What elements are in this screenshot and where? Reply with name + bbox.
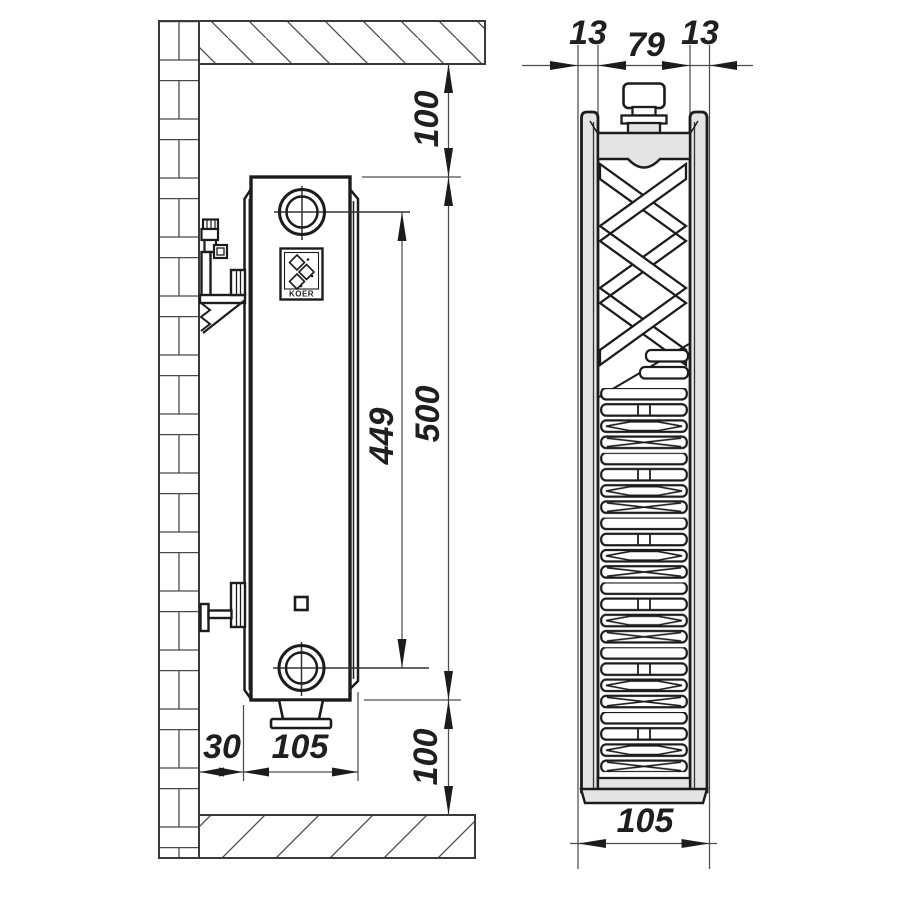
floor-section [199,815,475,858]
drawing-svg: KOER [0,0,900,900]
top-wall-bracket [200,220,245,334]
dim-label-core-width: 79 [627,26,665,64]
ceiling-section [199,21,485,64]
dim-label-depth: 105 [272,728,330,766]
front-view: 13 79 13 105 [522,14,753,869]
dim-label-port-spacing: 449 [363,408,401,466]
dim-label-top-clearance: 100 [408,91,446,148]
bottom-wall-bracket [201,583,246,631]
brand-logo: KOER [281,249,323,300]
radiator-base [581,778,707,803]
brand-logo-text: KOER [289,290,314,299]
dim-label-wall-gap: 30 [203,728,241,766]
dim-label-panel-right: 13 [681,14,719,52]
side-view: KOER [159,21,485,858]
radiator-dimension-drawing: KOER [0,0,900,900]
convector-fins-zigzag [599,164,689,397]
dim-label-bottom-clearance: 100 [407,729,445,786]
side-vent-square [295,597,308,610]
drain-plug [271,700,331,728]
dim-label-total-depth: 105 [617,802,675,840]
wall-section [159,21,199,858]
dim-label-panel-left: 13 [569,14,607,52]
air-vent-valve [622,84,667,135]
convector-fin-slats [600,388,688,772]
dim-label-height: 500 [409,386,447,443]
